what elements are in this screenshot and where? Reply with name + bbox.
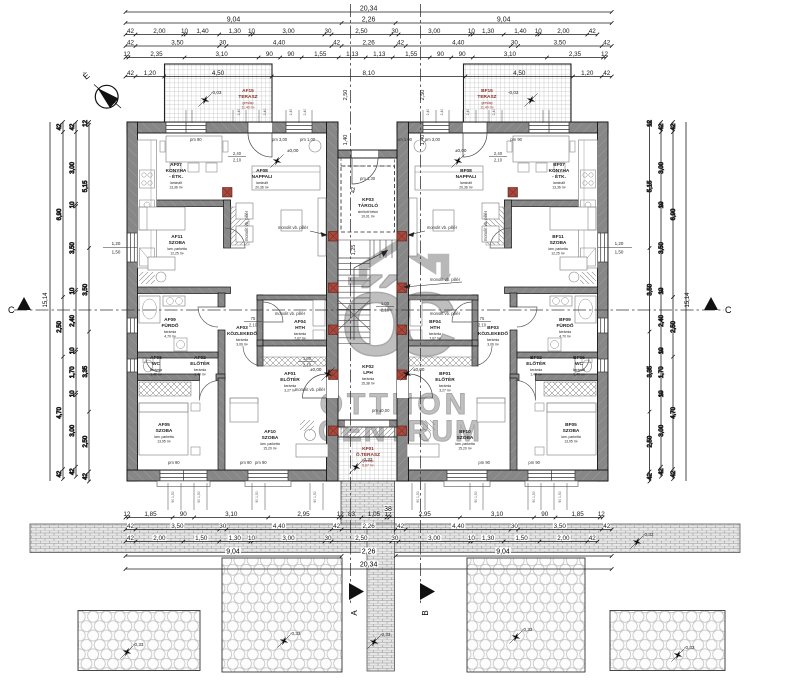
svg-text:HTH: HTH <box>295 325 305 331</box>
svg-text:FÜRDŐ: FÜRDŐ <box>556 322 573 329</box>
svg-text:42: 42 <box>333 523 341 530</box>
svg-text:1,00: 1,00 <box>303 356 312 361</box>
svg-text:AF10: AF10 <box>264 429 276 435</box>
svg-text:2,40: 2,40 <box>659 314 665 326</box>
svg-text:1,50: 1,50 <box>515 535 528 542</box>
svg-text:10: 10 <box>248 535 256 542</box>
svg-text:42: 42 <box>351 187 357 193</box>
svg-text:1,05: 1,05 <box>368 511 381 518</box>
svg-text:2,50: 2,50 <box>83 435 89 447</box>
svg-text:42: 42 <box>603 40 611 47</box>
svg-text:kerámia: kerámia <box>150 368 162 372</box>
svg-text:2,26: 2,26 <box>362 40 375 47</box>
svg-text:75: 75 <box>480 316 485 321</box>
svg-text:4,70 m²: 4,70 m² <box>559 335 571 339</box>
svg-text:AF04: AF04 <box>294 319 306 325</box>
svg-text:2,10: 2,10 <box>478 323 487 328</box>
svg-text:10: 10 <box>659 347 665 354</box>
svg-text:-0,03: -0,03 <box>211 90 222 95</box>
svg-text:3,00: 3,00 <box>70 161 76 173</box>
svg-text:pm 90: pm 90 <box>510 137 522 142</box>
svg-text:90: 90 <box>266 51 274 58</box>
svg-text:6,90: 6,90 <box>671 208 677 220</box>
svg-text:2,40: 2,40 <box>303 109 307 116</box>
svg-text:FÜRDŐ: FÜRDŐ <box>161 322 178 329</box>
svg-text:lam. parketta: lam. parketta <box>154 435 174 439</box>
svg-text:B: B <box>421 610 430 615</box>
svg-text:pm ±0,00: pm ±0,00 <box>372 408 390 413</box>
svg-text:AF09: AF09 <box>164 317 176 323</box>
svg-text:2,40: 2,40 <box>70 314 76 326</box>
svg-text:AF03: AF03 <box>236 325 248 331</box>
svg-text:AF05: AF05 <box>158 422 170 428</box>
svg-text:laminált: laminált <box>553 181 565 185</box>
svg-text:42: 42 <box>127 28 135 35</box>
svg-text:pm 90: pm 90 <box>255 460 267 465</box>
svg-text:C: C <box>8 305 15 315</box>
svg-text:4,40: 4,40 <box>452 523 465 530</box>
svg-text:2,40: 2,40 <box>237 109 241 116</box>
svg-text:42: 42 <box>648 473 654 480</box>
svg-text:2,26: 2,26 <box>362 549 376 556</box>
svg-text:2,95: 2,95 <box>297 511 310 518</box>
svg-text:12: 12 <box>601 51 609 58</box>
svg-text:A: A <box>350 610 359 616</box>
svg-text:1,25: 1,25 <box>351 245 357 256</box>
svg-text:2,40: 2,40 <box>233 151 242 156</box>
svg-text:NAPPALI: NAPPALI <box>252 174 273 180</box>
svg-text:42: 42 <box>127 70 135 77</box>
svg-text:7,07 m²: 7,07 m² <box>294 337 306 341</box>
svg-text:3,00: 3,00 <box>282 28 295 35</box>
svg-text:-0,33: -0,33 <box>522 627 533 632</box>
svg-text:BF09: BF09 <box>559 317 571 323</box>
svg-text:10: 10 <box>535 28 543 35</box>
svg-text:9,04: 9,04 <box>496 549 510 556</box>
svg-text:1,00: 1,00 <box>381 301 390 306</box>
svg-text:KONYHA: KONYHA <box>166 168 187 174</box>
svg-text:10: 10 <box>468 535 476 542</box>
svg-text:30: 30 <box>324 535 332 542</box>
svg-text:90: 90 <box>541 511 549 518</box>
svg-text:10: 10 <box>70 287 76 294</box>
svg-text:1,55: 1,55 <box>405 51 418 58</box>
svg-text:30: 30 <box>511 40 519 47</box>
svg-text:42: 42 <box>671 470 677 477</box>
svg-text:BF01: BF01 <box>439 371 451 377</box>
svg-text:10,01 m²: 10,01 m² <box>361 215 375 219</box>
svg-text:1,30: 1,30 <box>229 535 242 542</box>
svg-text:42: 42 <box>333 40 341 47</box>
svg-text:9,04: 9,04 <box>226 549 240 556</box>
svg-text:1,70: 1,70 <box>70 366 76 378</box>
svg-text:1,50: 1,50 <box>615 250 624 255</box>
svg-text:12: 12 <box>598 511 606 518</box>
svg-text:83: 83 <box>348 511 356 518</box>
svg-text:kerámia: kerámia <box>362 377 374 381</box>
svg-text:monolit vb. pillér: monolit vb. pillér <box>430 277 461 282</box>
svg-text:3,00: 3,00 <box>282 535 295 542</box>
svg-text:AF07: AF07 <box>170 162 182 168</box>
svg-text:42: 42 <box>397 40 405 47</box>
svg-text:1,30: 1,30 <box>229 28 242 35</box>
svg-text:12: 12 <box>648 119 654 126</box>
svg-text:1,85: 1,85 <box>571 511 584 518</box>
svg-text:5,15: 5,15 <box>648 180 654 192</box>
svg-text:1,40 m²: 1,40 m² <box>150 373 162 377</box>
svg-text:12,25 m²: 12,25 m² <box>170 252 184 256</box>
svg-text:2,10: 2,10 <box>249 323 258 328</box>
svg-text:±0,00: ±0,00 <box>287 148 299 153</box>
svg-text:42: 42 <box>659 123 665 130</box>
svg-text:BF11: BF11 <box>552 234 564 240</box>
svg-text:pm 3,00: pm 3,00 <box>272 137 288 142</box>
svg-text:10: 10 <box>248 28 256 35</box>
svg-text:kerámia: kerámia <box>559 330 571 334</box>
svg-text:12,25 m²: 12,25 m² <box>551 252 565 256</box>
svg-text:1,20: 1,20 <box>581 70 594 77</box>
svg-text:3,10: 3,10 <box>504 51 517 58</box>
svg-text:2,40: 2,40 <box>440 109 444 116</box>
svg-text:WC: WC <box>152 361 161 367</box>
svg-text:HTH: HTH <box>430 325 440 331</box>
svg-text:30: 30 <box>219 40 227 47</box>
svg-text:90 1,50: 90 1,50 <box>255 491 259 502</box>
svg-text:1,70: 1,70 <box>659 366 665 378</box>
svg-text:kerámia: kerámia <box>236 338 248 342</box>
svg-text:monolit vb. pillér: monolit vb. pillér <box>244 210 249 241</box>
svg-text:TERASZ: TERASZ <box>477 94 496 100</box>
svg-text:SZOBA: SZOBA <box>156 428 173 434</box>
svg-text:13,95 m²: 13,95 m² <box>564 440 578 444</box>
svg-text:2,00: 2,00 <box>153 535 166 542</box>
svg-text:10: 10 <box>659 201 665 208</box>
svg-text:12: 12 <box>337 511 345 518</box>
svg-text:90: 90 <box>437 51 445 58</box>
svg-text:monolit vb. pillér: monolit vb. pillér <box>278 225 309 230</box>
svg-text:3,10: 3,10 <box>225 511 238 518</box>
svg-text:9,04: 9,04 <box>227 17 241 24</box>
svg-text:BF02: BF02 <box>530 355 542 361</box>
svg-text:1,40 m²: 1,40 m² <box>573 373 585 377</box>
svg-text:SZOBA: SZOBA <box>169 240 186 246</box>
svg-text:monolit vb. pillér: monolit vb. pillér <box>483 210 488 241</box>
svg-text:kerámia: kerámia <box>530 368 542 372</box>
svg-text:1,30: 1,30 <box>482 535 495 542</box>
svg-text:kerámia: kerámia <box>439 384 451 388</box>
svg-text:3,50: 3,50 <box>554 523 567 530</box>
svg-text:12: 12 <box>123 51 131 58</box>
svg-text:3,50: 3,50 <box>70 242 76 254</box>
svg-text:AF01: AF01 <box>284 371 296 377</box>
svg-text:kerámia: kerámia <box>294 332 306 336</box>
svg-text:15,38 m²: 15,38 m² <box>361 382 375 386</box>
svg-text:12: 12 <box>123 511 131 518</box>
svg-text:pm 90: pm 90 <box>240 460 252 465</box>
svg-text:3,00: 3,00 <box>659 161 665 173</box>
svg-text:4,70: 4,70 <box>57 406 63 418</box>
svg-text:13,36 m²: 13,36 m² <box>552 186 566 190</box>
svg-text:AF11: AF11 <box>171 234 183 240</box>
svg-text:SZOBA: SZOBA <box>563 428 580 434</box>
svg-text:15,14: 15,14 <box>685 292 691 308</box>
svg-text:KF01: KF01 <box>362 446 374 452</box>
svg-text:4,70 m²: 4,70 m² <box>164 335 176 339</box>
svg-text:3,06 m²: 3,06 m² <box>487 343 499 347</box>
svg-text:1,40 m²: 1,40 m² <box>194 373 206 377</box>
svg-text:42: 42 <box>57 470 63 477</box>
svg-text:monolit vb. pillér: monolit vb. pillér <box>295 387 326 392</box>
svg-text:10: 10 <box>659 390 665 397</box>
svg-text:8,10: 8,10 <box>362 70 375 77</box>
svg-text:-0,33: -0,33 <box>290 631 301 636</box>
svg-text:90 1,50: 90 1,50 <box>532 491 536 502</box>
svg-text:TERASZ: TERASZ <box>238 94 257 100</box>
svg-text:38: 38 <box>384 506 392 513</box>
svg-text:lam. parketta: lam. parketta <box>167 247 187 251</box>
svg-text:1,40: 1,40 <box>420 135 426 146</box>
svg-text:4,50: 4,50 <box>513 70 526 77</box>
svg-text:±0,00: ±0,00 <box>413 367 425 372</box>
svg-text:2,10: 2,10 <box>303 363 312 368</box>
svg-text:laminált: laminált <box>170 181 182 185</box>
svg-text:kerámia: kerámia <box>194 368 206 372</box>
svg-text:AF06: AF06 <box>150 355 162 361</box>
svg-text:2,26: 2,26 <box>362 17 376 24</box>
svg-text:3,10: 3,10 <box>215 51 228 58</box>
svg-text:42: 42 <box>589 28 597 35</box>
svg-text:1,50: 1,50 <box>195 535 208 542</box>
svg-text:10: 10 <box>659 287 665 294</box>
svg-text:2,40: 2,40 <box>426 109 430 116</box>
svg-text:KF02: KF02 <box>362 364 374 370</box>
svg-text:KÖZLEKEDŐ: KÖZLEKEDŐ <box>478 330 508 337</box>
svg-text:42: 42 <box>603 523 611 530</box>
svg-text:2,10: 2,10 <box>494 158 503 163</box>
svg-text:3,00: 3,00 <box>659 424 665 436</box>
svg-text:3,50: 3,50 <box>659 242 665 254</box>
svg-text:Õ.TERASZ: Õ.TERASZ <box>356 451 380 458</box>
svg-text:90 1,50: 90 1,50 <box>416 491 420 502</box>
svg-text:90 1,50: 90 1,50 <box>197 491 201 502</box>
svg-text:2,00: 2,00 <box>153 28 166 35</box>
svg-text:15,14: 15,14 <box>43 292 49 308</box>
svg-text:4,40: 4,40 <box>273 40 286 47</box>
svg-text:1,40: 1,40 <box>343 135 349 146</box>
svg-text:SZOBA: SZOBA <box>457 435 474 441</box>
svg-text:lam. parketta: lam. parketta <box>260 442 280 446</box>
svg-text:15,20 m²: 15,20 m² <box>263 447 277 451</box>
svg-text:20,36 m²: 20,36 m² <box>255 186 269 190</box>
svg-text:3,00: 3,00 <box>428 28 441 35</box>
svg-text:±0,00: ±0,00 <box>455 148 467 153</box>
svg-text:pm 1,00: pm 1,00 <box>397 137 413 142</box>
svg-text:3,50: 3,50 <box>554 40 567 47</box>
svg-text:KF03: KF03 <box>362 197 374 203</box>
svg-text:90: 90 <box>459 51 467 58</box>
svg-text:2,00: 2,00 <box>557 28 570 35</box>
svg-text:42: 42 <box>589 535 597 542</box>
svg-text:2,26: 2,26 <box>362 523 375 530</box>
svg-text:BF15: BF15 <box>481 88 493 94</box>
svg-text:1,13: 1,13 <box>346 51 359 58</box>
svg-text:30: 30 <box>391 28 399 35</box>
svg-text:BF03: BF03 <box>487 325 499 331</box>
svg-text:3,00: 3,00 <box>428 535 441 542</box>
svg-text:3,06 m²: 3,06 m² <box>236 343 248 347</box>
svg-text:2,40: 2,40 <box>492 109 496 116</box>
svg-text:BF04: BF04 <box>429 319 441 325</box>
svg-text:2,10: 2,10 <box>381 308 390 313</box>
svg-text:10: 10 <box>468 28 476 35</box>
svg-text:laminált: laminált <box>256 181 268 185</box>
svg-text:30: 30 <box>324 28 332 35</box>
svg-text:42: 42 <box>397 523 405 530</box>
svg-text:LPH: LPH <box>363 370 373 376</box>
svg-text:75: 75 <box>251 316 256 321</box>
svg-text:pm 90: pm 90 <box>478 460 490 465</box>
svg-text:12: 12 <box>83 119 89 126</box>
svg-text:NAPPALI: NAPPALI <box>456 174 477 180</box>
svg-text:90 1,50: 90 1,50 <box>171 491 175 502</box>
svg-text:90 1,50: 90 1,50 <box>474 491 478 502</box>
svg-text:AF08: AF08 <box>256 168 268 174</box>
svg-text:42: 42 <box>57 123 63 130</box>
svg-text:3,35: 3,35 <box>648 365 654 377</box>
svg-text:2,95: 2,95 <box>419 511 432 518</box>
svg-text:lam. parketta: lam. parketta <box>548 247 568 251</box>
svg-text:42: 42 <box>127 535 135 542</box>
svg-text:kerámia: kerámia <box>429 332 441 336</box>
svg-text:3,50: 3,50 <box>83 283 89 295</box>
svg-text:2,50: 2,50 <box>355 28 368 35</box>
svg-text:-0,33: -0,33 <box>684 645 695 650</box>
svg-text:4,40: 4,40 <box>273 523 286 530</box>
svg-text:AF02: AF02 <box>194 355 206 361</box>
svg-text:15,20 m²: 15,20 m² <box>458 447 472 451</box>
svg-text:±0,00: ±0,00 <box>310 367 322 372</box>
svg-text:20,34: 20,34 <box>360 6 378 13</box>
svg-text:20,36 m²: 20,36 m² <box>459 186 473 190</box>
svg-text:-0,03: -0,03 <box>508 90 519 95</box>
svg-text:BF07: BF07 <box>553 162 565 168</box>
svg-text:kerámia: kerámia <box>573 368 585 372</box>
svg-text:2,35: 2,35 <box>569 51 582 58</box>
svg-text:42: 42 <box>659 468 665 475</box>
svg-text:3,50: 3,50 <box>171 523 184 530</box>
svg-text:4,40: 4,40 <box>452 40 465 47</box>
svg-text:3,27 m²: 3,27 m² <box>439 389 451 393</box>
svg-text:1,40: 1,40 <box>514 28 527 35</box>
svg-text:2,50: 2,50 <box>420 90 426 101</box>
svg-text:2,50: 2,50 <box>57 320 63 332</box>
svg-text:lam. parketta: lam. parketta <box>455 442 475 446</box>
svg-text:1,55: 1,55 <box>314 51 327 58</box>
svg-text:42: 42 <box>70 468 76 475</box>
svg-text:3,35: 3,35 <box>83 365 89 377</box>
svg-text:3,50: 3,50 <box>171 40 184 47</box>
svg-text:laminált: laminált <box>460 181 472 185</box>
svg-text:2,50: 2,50 <box>648 435 654 447</box>
svg-text:2,00: 2,00 <box>557 535 570 542</box>
svg-text:9,04: 9,04 <box>497 17 511 24</box>
svg-text:2,40: 2,40 <box>289 109 293 116</box>
svg-text:kerámia: kerámia <box>487 338 499 342</box>
svg-text:42: 42 <box>70 123 76 130</box>
svg-text:pm 1,00: pm 1,00 <box>300 137 316 142</box>
svg-text:BF06: BF06 <box>573 355 585 361</box>
svg-text:-0,33: -0,33 <box>380 632 391 637</box>
svg-text:2,40: 2,40 <box>466 109 470 116</box>
svg-text:90: 90 <box>287 51 295 58</box>
svg-text:1,13: 1,13 <box>373 51 386 58</box>
svg-text:2,50: 2,50 <box>355 535 368 542</box>
svg-text:30: 30 <box>219 523 227 530</box>
svg-text:1,40 m²: 1,40 m² <box>530 373 542 377</box>
svg-text:7,07 m²: 7,07 m² <box>429 337 441 341</box>
svg-text:1,30: 1,30 <box>482 28 495 35</box>
svg-text:42: 42 <box>127 523 135 530</box>
svg-text:2,50: 2,50 <box>343 90 349 101</box>
svg-text:greslap: greslap <box>362 459 373 463</box>
svg-text:42: 42 <box>127 40 135 47</box>
svg-text:pm 90: pm 90 <box>190 137 202 142</box>
svg-text:KÖZLEKEDŐ: KÖZLEKEDŐ <box>227 330 257 337</box>
svg-text:42: 42 <box>603 70 611 77</box>
svg-text:30: 30 <box>511 523 519 530</box>
svg-text:greslap: greslap <box>481 101 492 105</box>
svg-text:1,40: 1,40 <box>196 28 209 35</box>
svg-text:1,20: 1,20 <box>144 70 157 77</box>
svg-text:90 1,50: 90 1,50 <box>313 491 317 502</box>
svg-text:2,50: 2,50 <box>671 320 677 332</box>
svg-text:pm 90: pm 90 <box>168 460 180 465</box>
svg-text:2,40: 2,40 <box>263 109 267 116</box>
svg-text:13,36 m²: 13,36 m² <box>169 186 183 190</box>
svg-text:10: 10 <box>70 347 76 354</box>
svg-text:10: 10 <box>70 201 76 208</box>
svg-text:20,34: 20,34 <box>360 562 378 569</box>
svg-text:pm 1,30: pm 1,30 <box>360 176 376 181</box>
svg-text:pm 3,00: pm 3,00 <box>425 137 441 142</box>
svg-text:WC: WC <box>575 361 584 367</box>
svg-text:SZOBA: SZOBA <box>262 435 279 441</box>
svg-text:4,50: 4,50 <box>212 70 225 77</box>
svg-text:30: 30 <box>391 535 399 542</box>
svg-text:90: 90 <box>180 511 188 518</box>
svg-text:1,20: 1,20 <box>615 241 624 246</box>
svg-text:13,95 m²: 13,95 m² <box>157 440 171 444</box>
svg-text:monolit vb. pillér: monolit vb. pillér <box>430 311 461 316</box>
svg-text:2,35: 2,35 <box>150 51 163 58</box>
svg-text:3,00: 3,00 <box>70 424 76 436</box>
svg-text:AF15: AF15 <box>242 88 254 94</box>
svg-text:6,90: 6,90 <box>57 208 63 220</box>
svg-text:3,50: 3,50 <box>648 283 654 295</box>
svg-text:5,67 m²: 5,67 m² <box>362 464 374 468</box>
svg-text:1,85: 1,85 <box>144 511 157 518</box>
svg-text:11,40 m²: 11,40 m² <box>241 106 255 110</box>
svg-text:lam. parketta: lam. parketta <box>561 435 581 439</box>
svg-text:-0,33: -0,33 <box>643 532 654 537</box>
svg-text:10: 10 <box>70 390 76 397</box>
svg-text:1,50: 1,50 <box>112 250 121 255</box>
svg-text:2,40: 2,40 <box>494 151 503 156</box>
svg-text:monolit vb. pillér: monolit vb. pillér <box>427 225 458 230</box>
svg-text:greslap: greslap <box>242 101 253 105</box>
svg-text:4,70: 4,70 <box>671 406 677 418</box>
svg-text:2,10: 2,10 <box>233 158 242 163</box>
